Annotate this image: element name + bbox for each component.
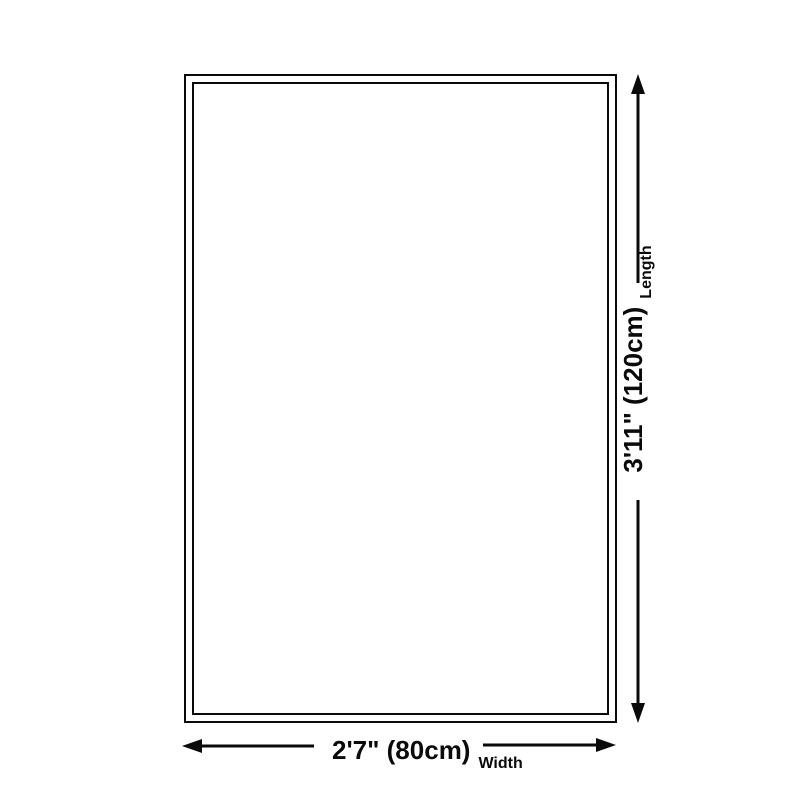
dimension-arrows bbox=[0, 0, 800, 800]
rug-size-diagram: 2'7" (80cm)Width 3'11" (120cm)Length bbox=[0, 0, 800, 800]
arrow-down-icon bbox=[631, 703, 645, 723]
width-label: Width bbox=[478, 755, 522, 772]
length-label: Length bbox=[638, 245, 655, 298]
length-dimension-label: 3'11" (120cm)Length bbox=[620, 245, 660, 472]
arrow-right-icon bbox=[596, 738, 616, 752]
length-value: 3'11" (120cm) bbox=[618, 307, 648, 473]
width-value: 2'7" (80cm) bbox=[332, 735, 470, 765]
width-dimension-label: 2'7" (80cm)Width bbox=[332, 737, 523, 777]
